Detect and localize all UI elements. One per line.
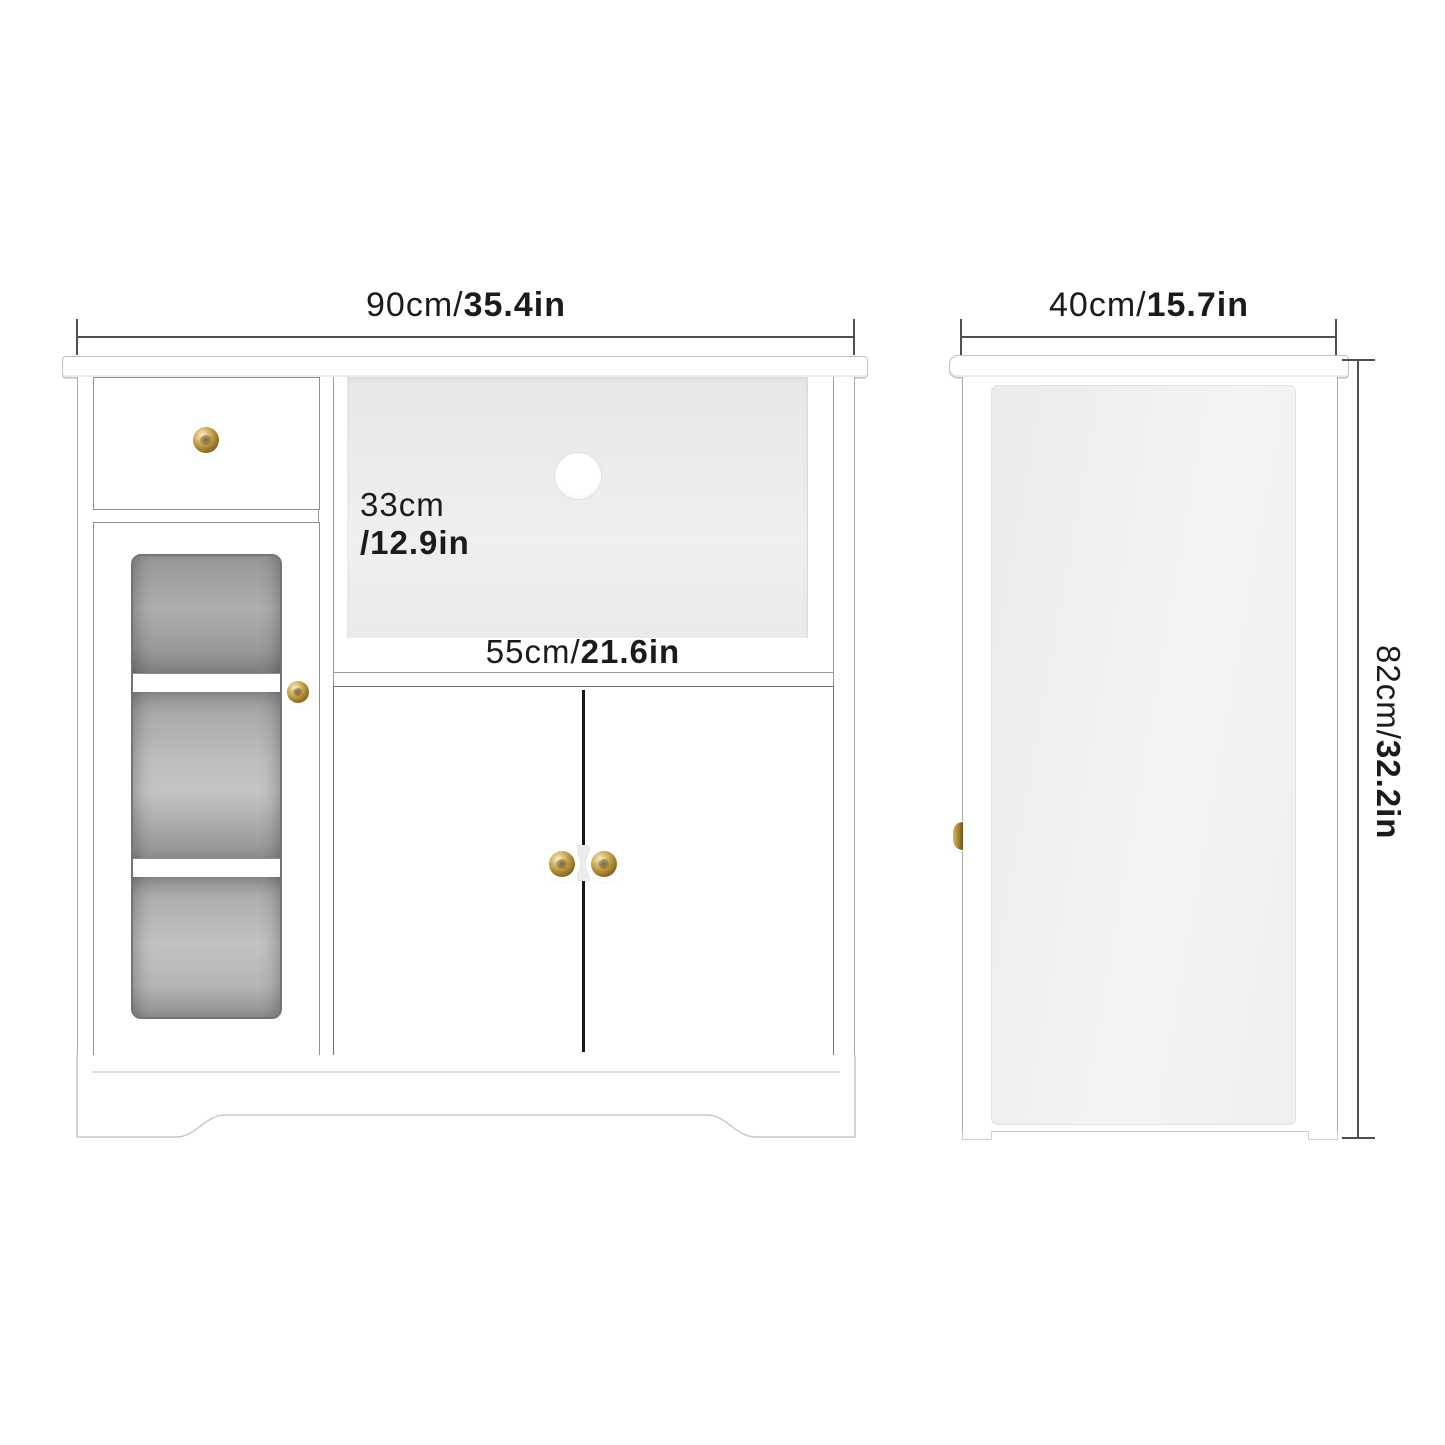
- opening-height-imperial: /12.9in: [360, 524, 470, 562]
- side-height-metric: 82cm/: [1370, 645, 1407, 740]
- glass-shelf-upper: [133, 674, 280, 692]
- cable-hole: [555, 453, 601, 499]
- dimension-tick-bottom: [1342, 1137, 1375, 1139]
- opening-width-imperial: 21.6in: [581, 633, 681, 670]
- dimension-tick-right: [853, 319, 855, 355]
- side-depth-metric: 40cm/: [1049, 286, 1147, 324]
- side-top-molding: [949, 355, 1349, 378]
- glass-door: [93, 522, 320, 1057]
- opening-height-metric: 33cm: [360, 486, 470, 524]
- door-latch: [577, 845, 590, 881]
- double-doors: [333, 686, 834, 1056]
- front-width-dimension-line: [77, 336, 854, 338]
- dimension-tick-right: [1335, 319, 1337, 355]
- opening-height-label: 33cm /12.9in: [360, 486, 470, 562]
- side-depth-imperial: 15.7in: [1147, 286, 1249, 324]
- side-height-imperial: 32.2in: [1370, 740, 1407, 840]
- front-base-apron: [76, 1055, 856, 1141]
- side-depth-dimension-label: 40cm/15.7in: [961, 287, 1337, 323]
- glass-compartment-middle: [133, 692, 280, 859]
- dimension-tick-left: [76, 319, 78, 355]
- side-back-leg: [1308, 1131, 1338, 1140]
- glass-compartment-top: [133, 556, 280, 674]
- front-top-molding: [62, 356, 868, 378]
- dimension-tick-left: [960, 319, 962, 355]
- shelf-front-edge: [333, 672, 834, 673]
- product-dimension-diagram: 90cm/35.4in 33cm /12.9in 55cm/21.6in: [0, 0, 1445, 1445]
- front-width-imperial: 35.4in: [464, 286, 566, 324]
- side-knob-profile: [953, 822, 963, 850]
- cabinet-side-view: [962, 377, 1338, 1132]
- left-door-knob: [549, 851, 575, 877]
- left-door: [334, 687, 582, 1055]
- side-front-leg: [962, 1131, 992, 1140]
- glass-door-knob: [287, 681, 309, 703]
- opening-width-label: 55cm/21.6in: [333, 633, 833, 671]
- glass-shelf-lower: [133, 859, 280, 877]
- right-door-knob: [591, 851, 617, 877]
- side-recessed-panel: [991, 385, 1296, 1125]
- side-height-dimension-label: 82cm/32.2in: [1369, 645, 1407, 839]
- opening-width-metric: 55cm/: [486, 633, 581, 670]
- dimension-tick-top: [1342, 359, 1375, 361]
- front-width-dimension-label: 90cm/35.4in: [77, 287, 855, 323]
- side-depth-dimension-line: [961, 336, 1336, 338]
- side-height-dimension-line: [1357, 359, 1359, 1139]
- front-width-metric: 90cm/: [366, 286, 464, 324]
- right-door: [585, 687, 833, 1055]
- glass-door-window: [131, 554, 282, 1019]
- glass-compartment-bottom: [133, 877, 280, 1017]
- drawer-knob: [193, 427, 219, 453]
